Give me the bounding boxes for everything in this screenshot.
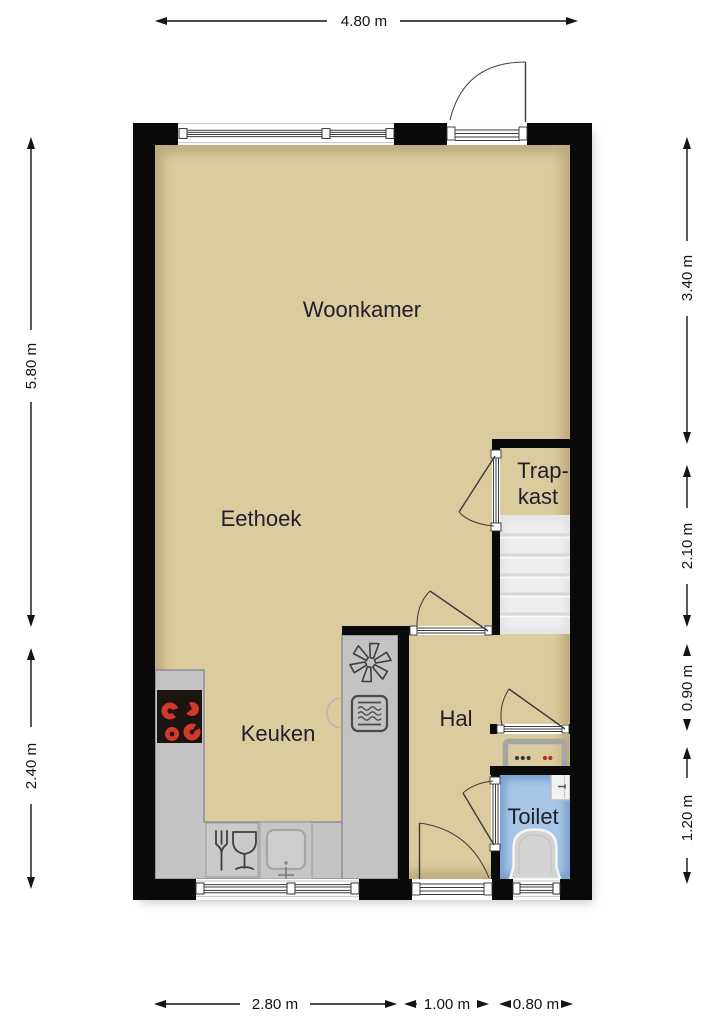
svg-text:5.80 m: 5.80 m <box>23 343 40 389</box>
svg-text:Woonkamer: Woonkamer <box>303 297 421 322</box>
svg-text:Hal: Hal <box>439 706 472 731</box>
svg-text:Toilet: Toilet <box>507 804 558 829</box>
svg-text:3.40 m: 3.40 m <box>679 255 696 301</box>
svg-text:2.40 m: 2.40 m <box>23 743 40 789</box>
svg-text:1.20 m: 1.20 m <box>679 795 696 841</box>
svg-text:Trap-: Trap- <box>517 458 569 483</box>
svg-text:Keuken: Keuken <box>241 721 316 746</box>
svg-text:2.10 m: 2.10 m <box>679 523 696 569</box>
svg-text:4.80 m: 4.80 m <box>341 13 387 30</box>
svg-text:2.80 m: 2.80 m <box>252 996 298 1013</box>
svg-text:1.00 m: 1.00 m <box>424 996 470 1013</box>
svg-text:0.80 m: 0.80 m <box>513 996 559 1013</box>
svg-text:0.90 m: 0.90 m <box>679 665 696 711</box>
svg-text:Eethoek: Eethoek <box>221 506 303 531</box>
svg-text:kast: kast <box>518 484 558 509</box>
